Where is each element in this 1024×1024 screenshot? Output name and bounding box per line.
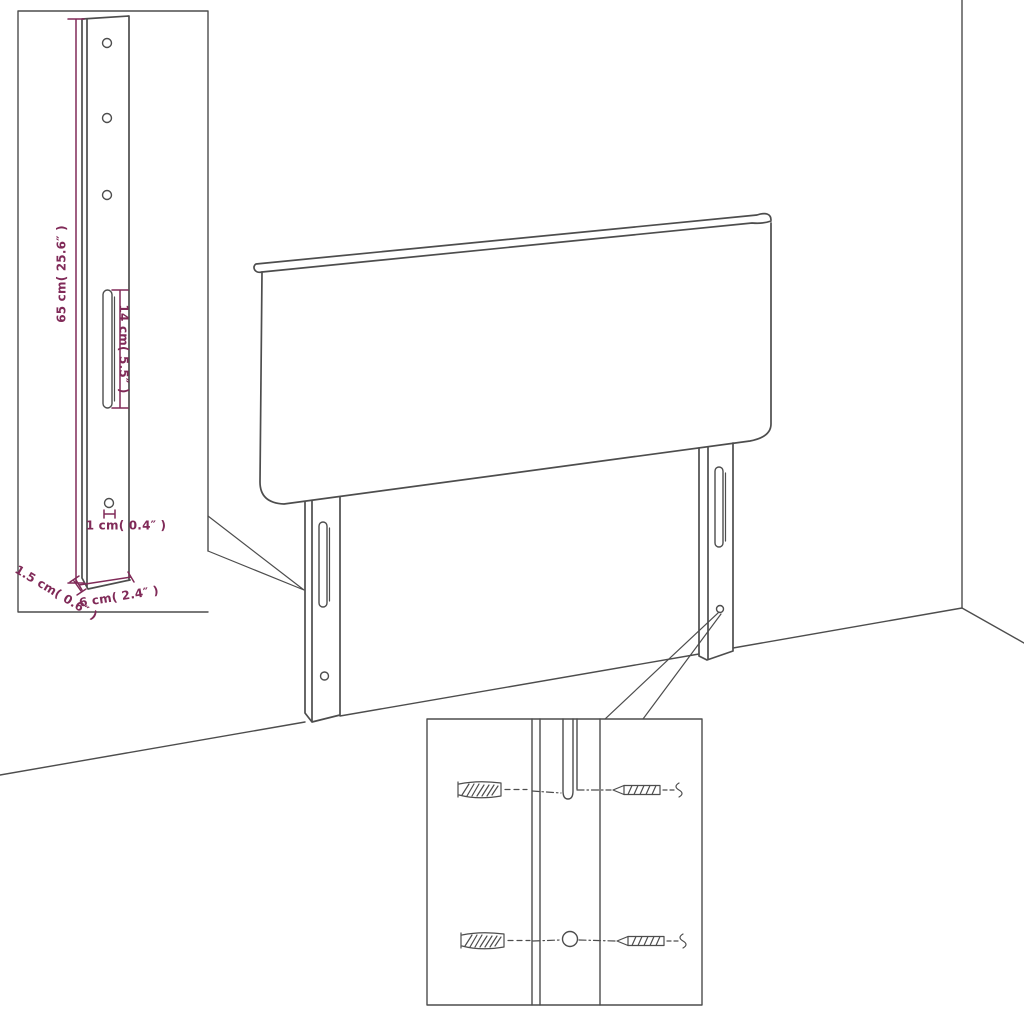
- leg-hole-icon: [563, 932, 578, 947]
- leg-detail-drawing: [82, 16, 130, 589]
- screw-hole-icon-3: [103, 191, 112, 200]
- wall-plug-icon-bottom: [461, 933, 530, 949]
- leg-dimensions: 65 cm( 25.6″ ) 14 cm( 5.5″ ) 1 cm( 0.4″ …: [12, 19, 166, 623]
- dim-line-thickness: [70, 576, 86, 595]
- wall-plug-icon-top: [458, 782, 527, 798]
- dim-label-height: 65 cm( 25.6″ ): [55, 225, 69, 323]
- screw-icon-bottom: [617, 934, 686, 948]
- diagram-canvas: 65 cm( 25.6″ ) 14 cm( 5.5″ ) 1 cm( 0.4″ …: [0, 0, 1024, 1024]
- leg-strip: [532, 719, 600, 1005]
- callout-lines-left-leg: [208, 516, 304, 590]
- left-leg: [305, 497, 340, 722]
- assembly-diagram: 65 cm( 25.6″ ) 14 cm( 5.5″ ) 1 cm( 0.4″ …: [0, 0, 1024, 1024]
- dim-line-hole: [104, 510, 115, 518]
- room-corner: [0, 0, 1024, 775]
- alignment-line-top: [532, 790, 611, 793]
- right-leg-outline: [699, 443, 733, 660]
- right-leg: [699, 443, 733, 660]
- left-leg-outline: [305, 497, 340, 722]
- headboard-top-edge: [254, 214, 771, 273]
- callout-lines-right-leg: [605, 612, 721, 719]
- leg-detail-inset: 65 cm( 25.6″ ) 14 cm( 5.5″ ) 1 cm( 0.4″ …: [12, 11, 304, 623]
- small-hole-icon: [105, 499, 114, 508]
- left-leg-hole: [321, 672, 329, 680]
- right-leg-slot: [715, 467, 723, 547]
- adjustment-slot-icon: [103, 290, 112, 408]
- floor-line-right: [962, 608, 1024, 643]
- dim-label-hole: 1 cm( 0.4″ ): [86, 519, 167, 533]
- leg-detail-outline: [82, 16, 130, 589]
- left-leg-slot: [319, 522, 327, 607]
- alignment-line-bottom: [533, 940, 615, 941]
- headboard: [254, 214, 771, 722]
- screw-icon-top: [613, 783, 682, 797]
- hardware-inset-border: [427, 719, 702, 1005]
- right-leg-hole: [717, 606, 724, 613]
- screw-hole-icon-2: [103, 114, 112, 123]
- hardware-detail-inset: [427, 612, 721, 1005]
- screw-hole-icon-1: [103, 39, 112, 48]
- dim-label-slot: 14 cm( 5.5″ ): [117, 304, 131, 393]
- floor-line-left: [0, 608, 962, 775]
- leg-slot-icon: [563, 719, 577, 799]
